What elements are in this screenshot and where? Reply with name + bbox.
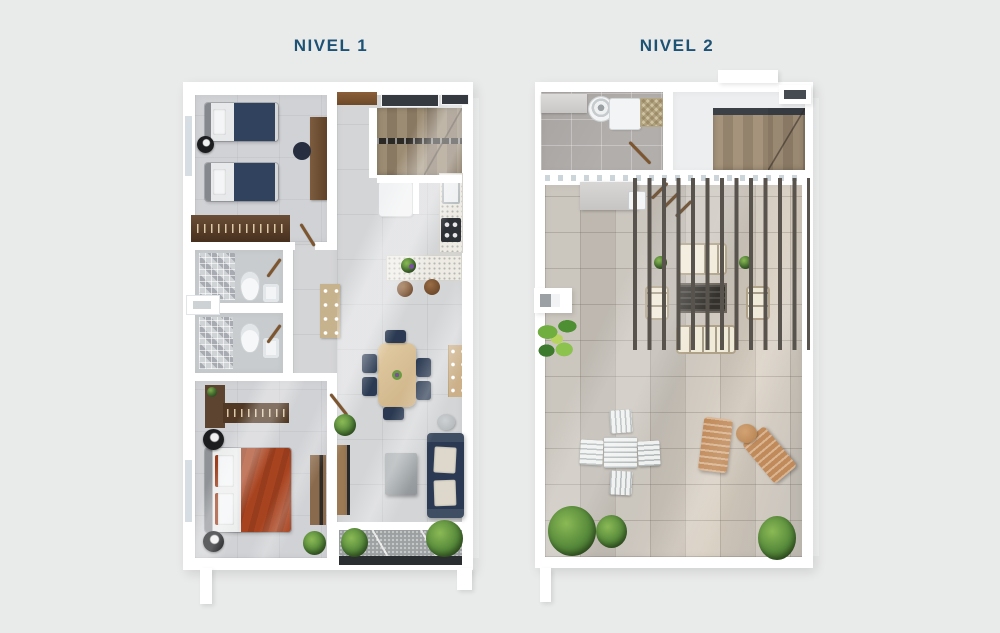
dining-chair xyxy=(416,358,431,377)
balcony-plant xyxy=(341,528,368,557)
breakfast-bar xyxy=(387,256,461,280)
sofa-arm xyxy=(427,433,464,442)
wall-shadow xyxy=(473,98,479,558)
floorplan-canvas: NIVEL 1 NIVEL 2 xyxy=(0,0,1000,633)
wall-bedroom1-bottom xyxy=(315,242,337,250)
terrace-shrub xyxy=(758,516,796,560)
level-2-title: NIVEL 2 xyxy=(532,36,822,56)
nightstand xyxy=(203,429,224,450)
vent-box xyxy=(779,85,811,104)
laundry-basket xyxy=(641,99,663,126)
console-table xyxy=(320,284,340,338)
nightstand xyxy=(203,531,224,552)
pillow xyxy=(215,455,234,487)
sofa-cushion xyxy=(433,446,456,473)
bedroom-plant xyxy=(303,531,326,555)
tropical-plant xyxy=(532,310,584,368)
living-plant xyxy=(334,414,356,436)
window xyxy=(185,460,192,522)
sofa xyxy=(427,433,464,518)
wall-bath2-bottom xyxy=(183,373,328,381)
desk xyxy=(310,117,327,200)
niche-shelf xyxy=(193,301,211,309)
outdoor-dining-chair xyxy=(637,440,660,466)
sink-2 xyxy=(263,338,279,358)
stair-winder xyxy=(424,108,462,175)
shower-2 xyxy=(199,317,233,369)
desk-chair xyxy=(293,142,311,160)
round-side-table xyxy=(437,414,455,430)
tv-console xyxy=(335,445,350,515)
outdoor-dining-table xyxy=(604,437,637,468)
window-pane xyxy=(540,294,560,307)
pillow xyxy=(215,493,234,525)
wall-bedroom1-bottom xyxy=(183,242,295,250)
walkin-closet xyxy=(223,403,289,423)
wall-master-right xyxy=(327,419,337,558)
stair-storage-slot xyxy=(441,94,469,105)
level-1-floorplan xyxy=(183,68,479,613)
pillow xyxy=(213,169,226,195)
stair-winder xyxy=(768,108,805,170)
level-1-title: NIVEL 1 xyxy=(183,36,479,56)
closet xyxy=(191,215,290,242)
dining-chair xyxy=(383,407,404,420)
wall-bath1 xyxy=(283,280,293,326)
wall-stair-left xyxy=(369,108,377,178)
balcony-edge xyxy=(339,556,462,565)
vent-slot xyxy=(784,90,806,99)
pillow xyxy=(213,109,226,135)
pergola-slats xyxy=(633,178,810,350)
toilet-1 xyxy=(241,272,259,300)
level-2-floorplan xyxy=(532,68,822,613)
wall-kitchen-divider xyxy=(413,180,419,214)
refrigerator xyxy=(379,182,412,216)
flower xyxy=(409,264,414,269)
coffee-table xyxy=(385,453,417,495)
wall-shadow xyxy=(813,98,819,556)
wall-master-right xyxy=(327,373,337,393)
outdoor-dining-chair xyxy=(609,409,633,433)
wall-laundry-stair xyxy=(663,82,673,172)
dining-chair xyxy=(362,354,377,373)
bedside-stool xyxy=(197,136,214,153)
sink-1 xyxy=(263,284,279,302)
shower-1 xyxy=(199,253,235,300)
dining-chair xyxy=(385,330,406,343)
wall-stub-right xyxy=(457,568,472,590)
outdoor-dining-chair xyxy=(609,470,632,495)
stair-storage-slot xyxy=(381,94,439,107)
balcony-plant xyxy=(426,520,463,557)
twin-bed-1 xyxy=(205,103,278,141)
sofa-cushion xyxy=(434,480,457,507)
hanger-rail xyxy=(227,409,285,417)
centerpiece xyxy=(392,370,402,380)
twin-bed-2 xyxy=(205,163,278,201)
dining-chair xyxy=(362,377,377,396)
outdoor-dining-chair xyxy=(579,439,603,465)
closet-plant xyxy=(207,387,217,397)
terrace-shrub xyxy=(596,515,627,548)
toilet-2 xyxy=(241,324,259,352)
kitchen-sink xyxy=(442,180,460,204)
wall-stub-left xyxy=(200,568,212,604)
entry-door xyxy=(337,92,377,105)
stair-landing xyxy=(377,175,462,183)
wall-bedroom1-hall xyxy=(327,95,337,242)
bar-stool xyxy=(397,281,413,297)
master-bed xyxy=(205,448,291,532)
stove xyxy=(441,218,461,242)
roof-notch xyxy=(718,70,778,83)
laundry-counter xyxy=(541,94,587,113)
terrace-shrub xyxy=(548,506,596,556)
sideboard xyxy=(448,345,462,397)
dining-table xyxy=(378,343,416,407)
water-heater xyxy=(610,99,640,129)
dining-chair xyxy=(416,381,431,400)
wall-stub xyxy=(540,568,551,602)
sofa-arm xyxy=(427,509,464,518)
dresser-tv xyxy=(310,455,326,525)
bar-stool xyxy=(424,279,440,295)
hanger-rail xyxy=(197,224,284,233)
bath-niche xyxy=(187,296,219,314)
blanket-texture xyxy=(241,448,291,532)
wall-bath1 xyxy=(283,250,293,260)
lounger-side-table xyxy=(736,424,757,443)
staircase xyxy=(377,108,462,175)
staircase-upper xyxy=(713,108,805,170)
window xyxy=(185,116,192,176)
